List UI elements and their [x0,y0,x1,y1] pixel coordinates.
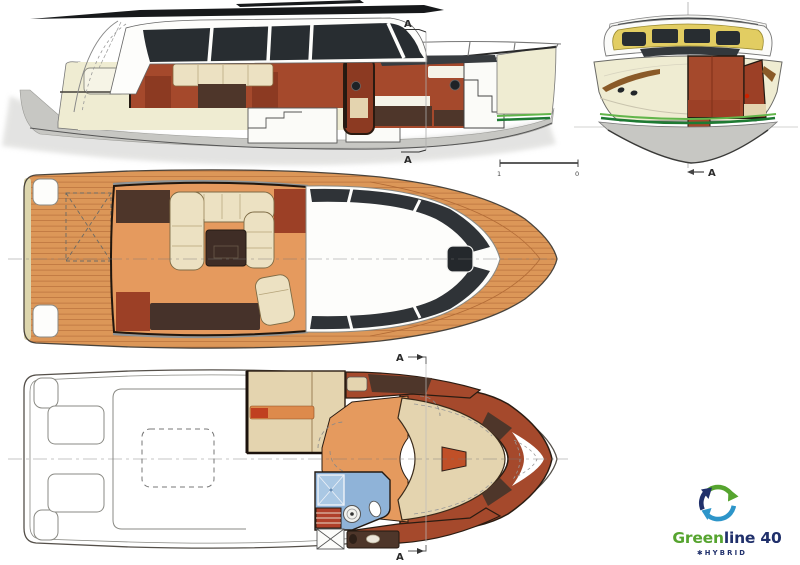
bow-green-stripe-dark [497,118,550,120]
scale-left-label: 1 [497,170,501,178]
bathroom [315,472,399,549]
companionway-steps [248,108,337,143]
side-profile-view: A A 1 0 [2,0,579,178]
stern-locker [34,378,58,408]
porthole [352,82,361,91]
stern-locker [34,510,58,540]
interior-cutaway-salon [130,62,346,108]
cockpit-door [344,58,374,134]
vanity [347,377,367,391]
brand-navy-part: line 40 [724,529,782,547]
boat-plans-canvas: A A 1 0 [0,0,800,565]
berth-pillow-red [251,408,268,418]
roof-hatch-panel [236,0,364,7]
brand-wordmark: Greenline 40 [672,529,782,547]
porthole [450,80,460,90]
main-deck-plan [8,170,557,348]
salon-wall [274,189,307,233]
galley-counter [150,303,260,330]
drawing-sheet: A A 1 0 [0,0,800,565]
salon-table [206,230,246,266]
engine-box [48,474,104,512]
lower-section-label-bottom: A [396,552,404,563]
lower-section-label-top: A [396,353,404,364]
cabin-window-band [143,23,424,62]
salon-table-side [198,84,246,108]
brand-tagline: ✱HYBRID [697,549,747,557]
side-section-label-top: A [404,19,412,30]
bow-section-view: A [574,2,798,179]
front-section-label: A [708,168,716,179]
tagline-star: ✱ [697,549,705,557]
tagline-text: HYBRID [705,549,747,557]
front-section-marker: A [687,168,716,179]
solar-roof [30,5,444,19]
brand-logo: Greenline 40 ✱HYBRID [672,487,782,557]
salon-wall [116,292,150,331]
bow-freeboard [497,46,556,114]
stern-locker [33,305,58,337]
side-section-label-bottom: A [404,155,412,166]
scale-right-label: 0 [575,170,579,178]
salon-cabinet [116,190,170,223]
scale-bar: 1 0 [497,160,579,179]
brand-green-part: Green [672,529,723,547]
interior-cutaway-galley [344,56,466,134]
stern-locker [33,179,58,205]
engine-box [48,406,104,444]
lower-deck-plan: A A [8,353,568,563]
